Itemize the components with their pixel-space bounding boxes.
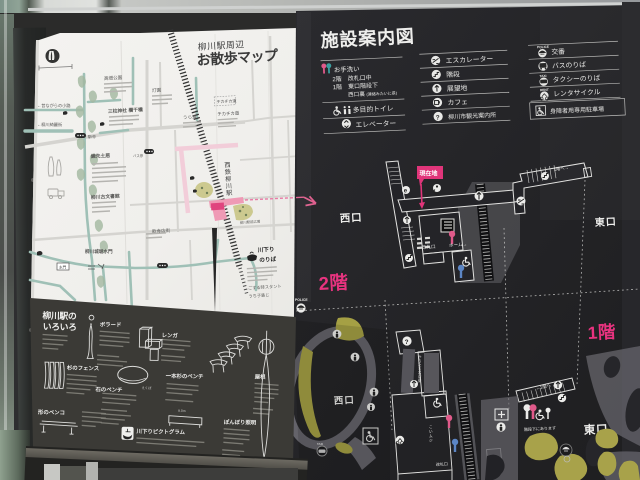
- svg-text:改札口: 改札口: [436, 460, 448, 467]
- svg-text:い: い: [429, 430, 433, 434]
- svg-text:いろいろ: いろいろ: [43, 322, 77, 333]
- svg-text:9.0m: 9.0m: [178, 409, 186, 413]
- svg-text:←昔ながらの小路: ←昔ながらの小路: [37, 102, 71, 109]
- svg-text:2階: 2階: [318, 271, 349, 294]
- svg-text:1階: 1階: [587, 322, 616, 343]
- svg-text:西口: 西口: [340, 212, 363, 225]
- svg-text:?: ?: [405, 339, 409, 346]
- svg-text:?: ?: [436, 114, 440, 121]
- svg-text:駅: 駅: [226, 190, 233, 197]
- svg-text:チカチカ道: チカチカ道: [216, 97, 236, 104]
- svg-text:←柳川綺麗街: ←柳川綺麗街: [37, 121, 62, 128]
- svg-text:ジ: ジ: [429, 439, 433, 443]
- svg-text:ム: ム: [429, 433, 433, 438]
- svg-text:えくぼ: えくぼ: [141, 385, 152, 390]
- svg-text:水門: 水門: [59, 265, 67, 270]
- svg-text:川下り: 川下り: [257, 246, 275, 254]
- svg-text:柳川城堀水門: 柳川城堀水門: [85, 248, 113, 255]
- svg-text:カフェ: カフェ: [447, 98, 468, 107]
- svg-text:屋根: 屋根: [255, 372, 267, 380]
- svg-text:駅/停: 駅/停: [88, 134, 96, 139]
- svg-text:現在地: 現在地: [420, 170, 438, 178]
- svg-text:こ: こ: [429, 424, 433, 429]
- svg-text:石のベンチ: 石のベンチ: [94, 386, 123, 394]
- svg-text:バス停: バス停: [133, 153, 144, 158]
- svg-text:柳川駅の: 柳川駅の: [42, 310, 77, 322]
